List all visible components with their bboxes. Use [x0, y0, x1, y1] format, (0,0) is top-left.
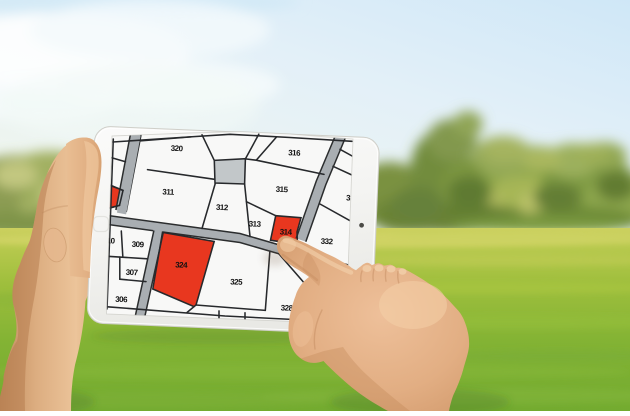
svg-text:306: 306 — [115, 295, 128, 305]
svg-text:316: 316 — [288, 148, 301, 158]
svg-text:311: 311 — [162, 187, 175, 197]
svg-text:325: 325 — [230, 277, 243, 287]
svg-text:332: 332 — [320, 237, 333, 247]
svg-text:320: 320 — [170, 144, 183, 154]
svg-text:313: 313 — [248, 219, 261, 229]
svg-text:315: 315 — [275, 185, 288, 195]
svg-text:324: 324 — [175, 260, 188, 270]
svg-text:309: 309 — [131, 240, 144, 250]
svg-text:314: 314 — [279, 227, 292, 237]
svg-text:307: 307 — [125, 268, 138, 278]
svg-text:312: 312 — [216, 203, 229, 213]
